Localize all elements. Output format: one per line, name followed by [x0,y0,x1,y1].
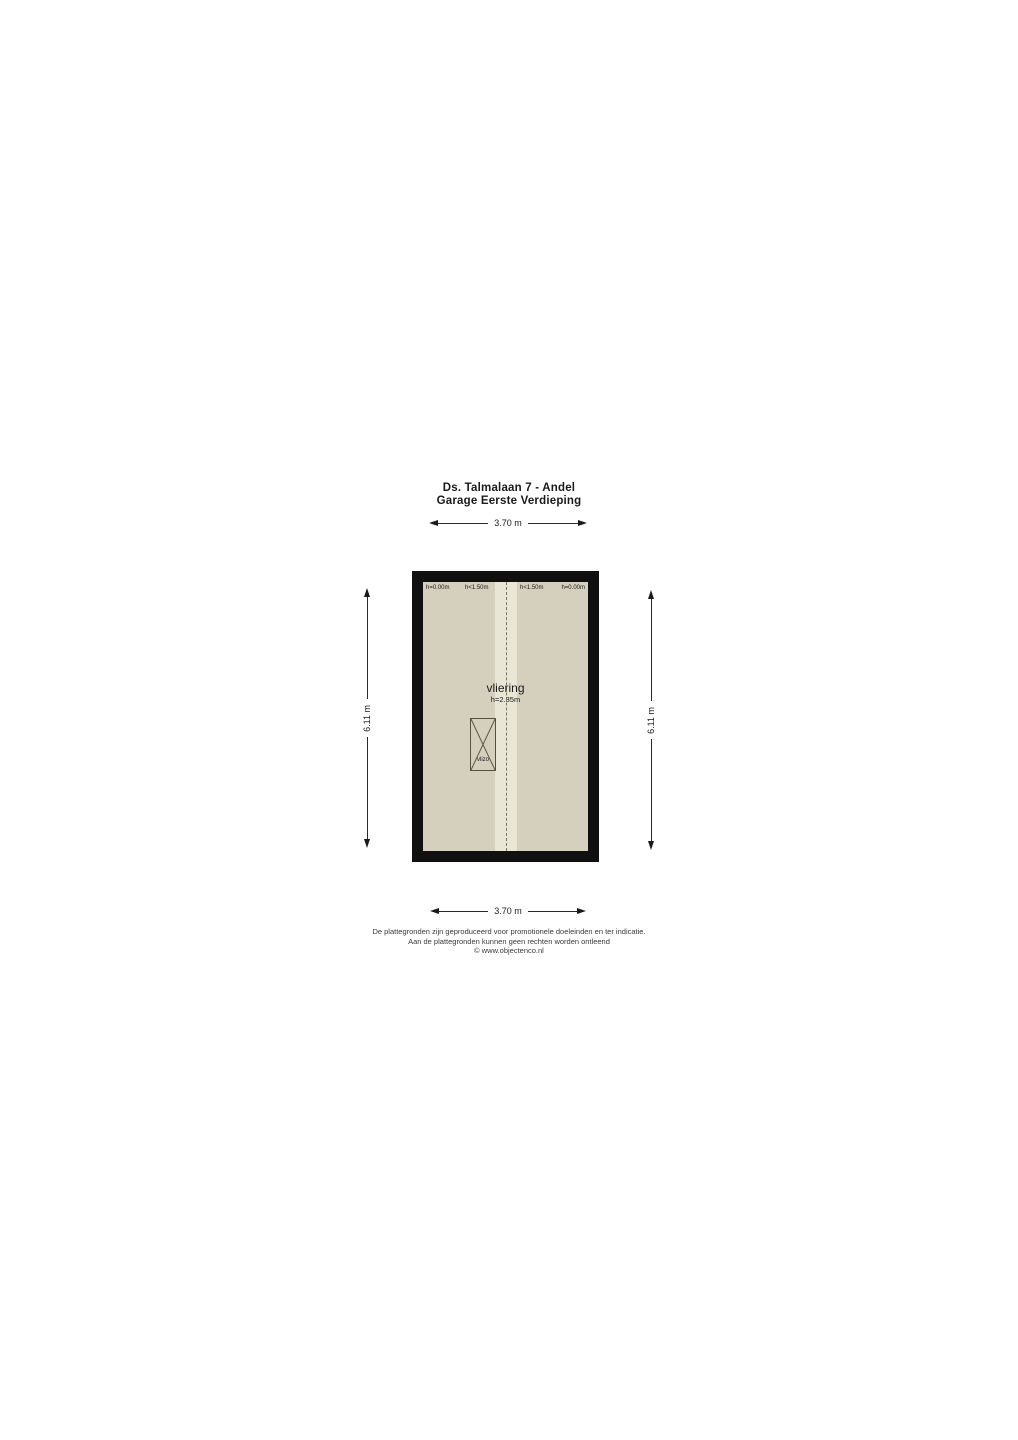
room-name: vliering [423,682,588,695]
height-label: h=0.00m [561,585,585,591]
dimension-line [651,599,652,701]
dimension-line [528,523,578,524]
dimension-arrow-up-icon [648,590,654,599]
dimension-line [438,523,488,524]
dimension-line [367,597,368,699]
loft-hatch: vlizo [470,718,496,771]
dimension-bottom: 3.70 m [430,906,586,916]
floor-subtitle: Garage Eerste Verdieping [0,495,1018,508]
floorplan-outline: h=0.00m h<1.50m h<1.50m h=0.00m vliering… [412,571,599,862]
page-title: Ds. Talmalaan 7 - Andel Garage Eerste Ve… [0,482,1018,508]
dimension-arrow-right-icon [577,908,586,914]
dimension-bottom-value: 3.70 m [488,906,528,916]
room-height: h=2.35m [423,695,588,704]
height-label: h<1.50m [520,585,544,591]
dimension-arrow-up-icon [364,588,370,597]
room-vliering: h=0.00m h<1.50m h<1.50m h=0.00m vliering… [423,582,588,851]
disclaimer: De plattegronden zijn geproduceerd voor … [0,927,1018,956]
ridge-dashed-line [506,582,507,851]
dimension-arrow-down-icon [648,841,654,850]
disclaimer-line: De plattegronden zijn geproduceerd voor … [0,927,1018,937]
dimension-arrow-down-icon [364,839,370,848]
dimension-line [651,739,652,841]
room-label: vliering h=2.35m [423,682,588,704]
copyright-line: © www.objectenco.nl [0,946,1018,956]
address-title: Ds. Talmalaan 7 - Andel [0,482,1018,495]
dimension-top-value: 3.70 m [488,518,528,528]
dimension-line [439,911,488,912]
height-label: h<1.50m [465,585,489,591]
dimension-arrow-left-icon [429,520,438,526]
disclaimer-line: Aan de plattegronden kunnen geen rechten… [0,937,1018,947]
dimension-line [367,737,368,839]
dimension-left-value: 6.11 m [362,699,372,738]
floorplan-page: Ds. Talmalaan 7 - Andel Garage Eerste Ve… [0,0,1018,1440]
dimension-right-value: 6.11 m [646,701,656,740]
height-label: h=0.00m [426,585,450,591]
dimension-left: 6.11 m [361,588,373,848]
dimension-top: 3.70 m [429,518,587,528]
hatch-label: vlizo [471,757,495,763]
dimension-right: 6.11 m [645,590,657,850]
dimension-arrow-left-icon [430,908,439,914]
dimension-line [528,911,577,912]
dimension-arrow-right-icon [578,520,587,526]
